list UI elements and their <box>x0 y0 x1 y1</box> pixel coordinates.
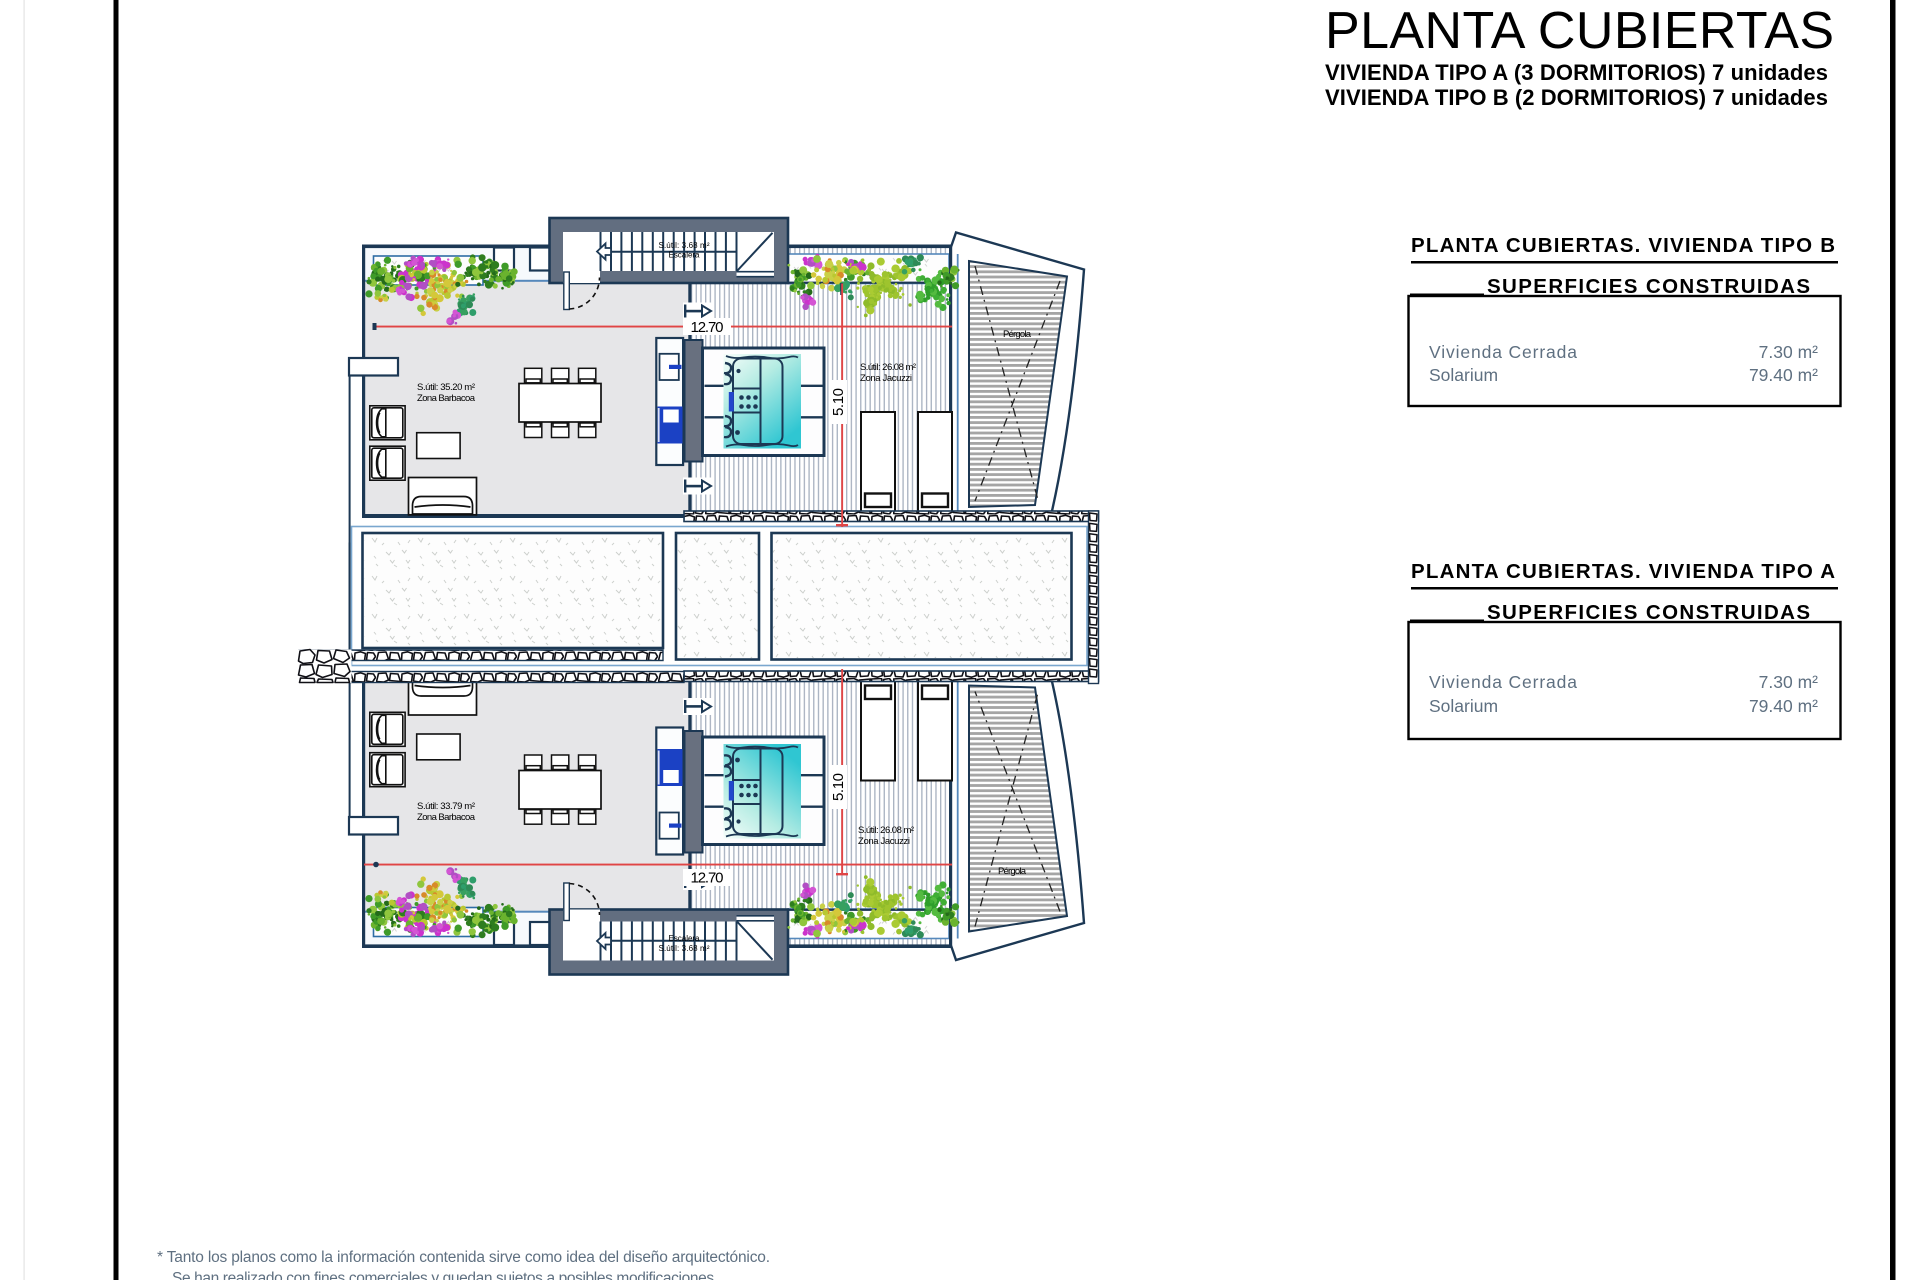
svg-text:Vivienda Cerrada: Vivienda Cerrada <box>1429 672 1577 692</box>
svg-text:Escalera: Escalera <box>669 251 701 260</box>
svg-text:S.útil: 3.68 m²: S.útil: 3.68 m² <box>659 944 710 953</box>
svg-text:Zona Jacuzzi: Zona Jacuzzi <box>860 373 912 384</box>
svg-text:SUPERFICIES CONSTRUIDAS: SUPERFICIES CONSTRUIDAS <box>1487 275 1810 298</box>
svg-text:S.útil: 3.68 m²: S.útil: 3.68 m² <box>659 241 710 250</box>
svg-text:VIVIENDA TIPO A (3 DORMITORIOS: VIVIENDA TIPO A (3 DORMITORIOS) 7 unidad… <box>1325 60 1828 85</box>
svg-text:Zona Barbacoa: Zona Barbacoa <box>417 812 476 823</box>
svg-text:Solarium: Solarium <box>1429 696 1498 716</box>
svg-text:Pérgola: Pérgola <box>1003 329 1032 340</box>
svg-text:S.útil: 35.20 m²: S.útil: 35.20 m² <box>417 382 475 393</box>
svg-text:Se han realizado con fines com: Se han realizado con fines comerciales y… <box>172 1270 718 1280</box>
svg-text:PLANTA CUBIERTAS. VIVIENDA TIP: PLANTA CUBIERTAS. VIVIENDA TIPO B <box>1411 234 1835 257</box>
svg-text:12.70: 12.70 <box>691 319 724 336</box>
svg-text:S.útil: 33.79 m²: S.útil: 33.79 m² <box>417 801 475 812</box>
svg-text:12.70: 12.70 <box>691 870 724 887</box>
svg-text:79.40 m²: 79.40 m² <box>1749 365 1818 385</box>
svg-text:Solarium: Solarium <box>1429 365 1498 385</box>
svg-text:Zona Barbacoa: Zona Barbacoa <box>417 393 476 404</box>
svg-text:PLANTA CUBIERTAS. VIVIENDA TIP: PLANTA CUBIERTAS. VIVIENDA TIPO A <box>1411 560 1835 583</box>
svg-text:Zona Jacuzzi: Zona Jacuzzi <box>858 836 910 847</box>
svg-text:Pérgola: Pérgola <box>998 866 1027 877</box>
svg-text:79.40 m²: 79.40 m² <box>1749 696 1818 716</box>
svg-text:5.10: 5.10 <box>830 388 847 416</box>
svg-text:* Tanto los planos como la inf: * Tanto los planos como la información c… <box>157 1249 770 1266</box>
svg-text:VIVIENDA TIPO B (2 DORMITORIOS: VIVIENDA TIPO B (2 DORMITORIOS) 7 unidad… <box>1325 85 1828 110</box>
svg-text:7.30 m²: 7.30 m² <box>1759 672 1818 692</box>
svg-text:S.útil: 26.08 m²: S.útil: 26.08 m² <box>858 825 914 836</box>
svg-text:5.10: 5.10 <box>830 773 847 801</box>
svg-text:SUPERFICIES CONSTRUIDAS: SUPERFICIES CONSTRUIDAS <box>1487 601 1810 624</box>
svg-text:Vivienda Cerrada: Vivienda Cerrada <box>1429 342 1577 362</box>
svg-text:S.útil: 26.08 m²: S.útil: 26.08 m² <box>860 362 916 373</box>
svg-text:Escalera: Escalera <box>669 934 701 943</box>
svg-text:PLANTA CUBIERTAS: PLANTA CUBIERTAS <box>1325 2 1834 60</box>
svg-text:7.30 m²: 7.30 m² <box>1759 342 1818 362</box>
